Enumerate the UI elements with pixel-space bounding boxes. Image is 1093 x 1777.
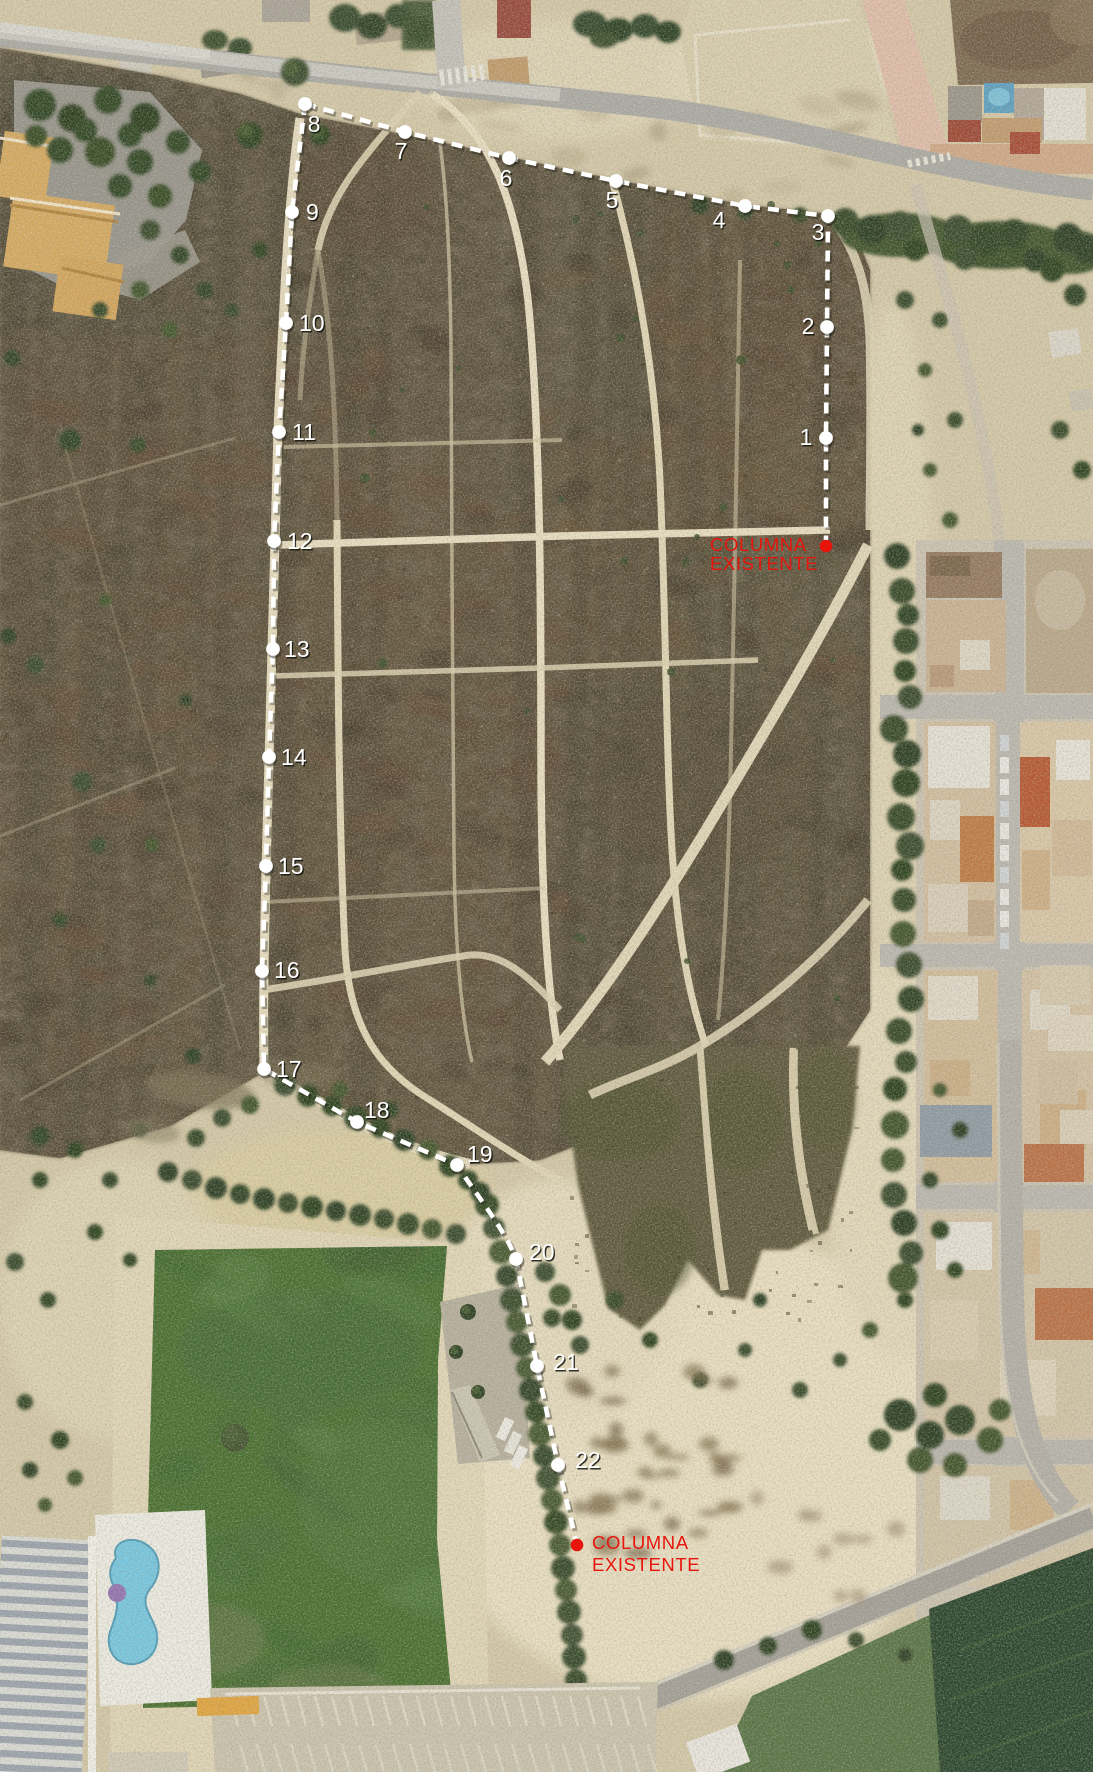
svg-text:12: 12: [287, 528, 313, 554]
svg-text:11: 11: [292, 419, 316, 445]
svg-text:9: 9: [306, 199, 319, 225]
svg-text:6: 6: [500, 165, 513, 191]
svg-text:19: 19: [467, 1141, 493, 1167]
svg-text:1: 1: [800, 424, 813, 450]
svg-text:4: 4: [713, 207, 726, 233]
svg-text:COLUMNA: COLUMNA: [710, 534, 807, 555]
svg-text:16: 16: [274, 957, 300, 983]
svg-text:5: 5: [606, 187, 619, 213]
svg-text:17: 17: [276, 1056, 302, 1082]
svg-text:EXISTENTE: EXISTENTE: [592, 1554, 700, 1575]
svg-text:COLUMNA: COLUMNA: [592, 1532, 689, 1553]
svg-text:21: 21: [553, 1349, 579, 1375]
svg-text:2: 2: [802, 313, 815, 339]
svg-text:15: 15: [278, 853, 304, 879]
svg-text:8: 8: [308, 111, 321, 137]
svg-text:22: 22: [575, 1447, 601, 1473]
svg-text:7: 7: [395, 138, 408, 164]
svg-text:EXISTENTE: EXISTENTE: [710, 553, 818, 574]
svg-text:20: 20: [529, 1239, 555, 1265]
svg-text:3: 3: [812, 219, 825, 245]
svg-text:13: 13: [284, 636, 310, 662]
svg-text:10: 10: [299, 310, 325, 336]
svg-text:14: 14: [281, 744, 307, 770]
svg-text:18: 18: [364, 1097, 390, 1123]
